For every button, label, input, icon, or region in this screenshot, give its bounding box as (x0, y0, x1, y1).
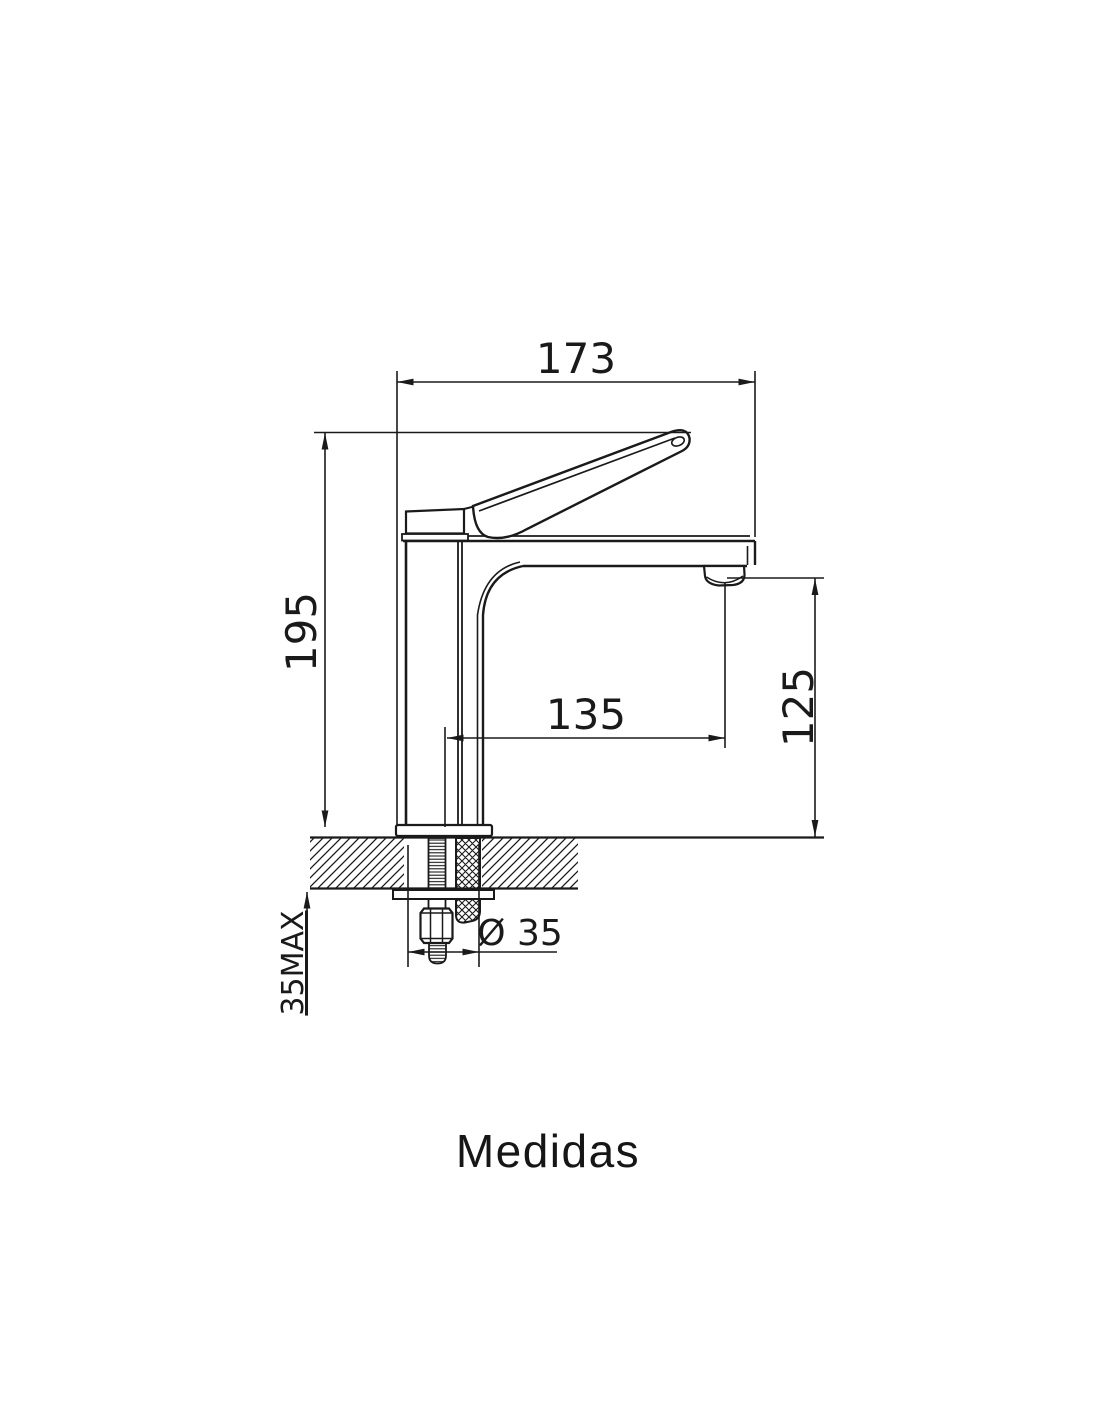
dim-label-spout-reach: 135 (546, 690, 626, 739)
dim-label-hole-diameter: Ø 35 (477, 913, 563, 954)
deck-hatch-right (482, 839, 578, 888)
spout-under-curve (483, 566, 523, 826)
dimension-overall-width: 173 (397, 334, 755, 826)
technical-drawing-page: 173 195 135 125 Ø 35 35MAX Medidas (0, 0, 1100, 1422)
dim-label-spout-height: 125 (774, 667, 823, 747)
dim-label-max-deck-thickness: 35MAX (276, 910, 311, 1015)
cartridge-base-ring (402, 534, 468, 541)
dimension-max-deck-thickness: 35MAX (276, 892, 311, 1016)
faucet-technical-drawing: 173 195 135 125 Ø 35 35MAX Medidas (0, 0, 1100, 1422)
dimension-spout-height: 125 (727, 578, 824, 837)
base-plate (396, 825, 492, 836)
column-inner-edges (458, 542, 462, 826)
dimension-spout-reach: 135 (445, 583, 725, 827)
threaded-mounting-rod-upper (429, 838, 446, 890)
deck-hatch-left (310, 839, 404, 888)
spout-top-and-right-edge (403, 541, 755, 565)
drawing-title: Medidas (456, 1125, 640, 1177)
dim-label-overall-height: 195 (277, 592, 326, 672)
faucet-body (396, 430, 755, 836)
threaded-mounting-rod-lower (429, 943, 446, 964)
cartridge-cap (406, 509, 464, 534)
braided-supply-hose (456, 838, 480, 923)
lever-handle (473, 430, 690, 538)
dim-label-overall-width: 173 (536, 334, 616, 383)
countertop-cross-section (310, 838, 824, 889)
